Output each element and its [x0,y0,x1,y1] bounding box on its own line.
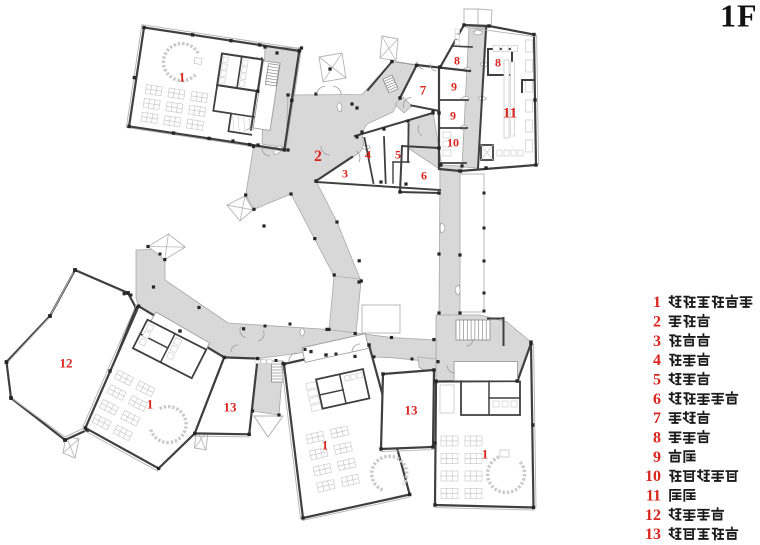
svg-text:10: 10 [645,468,661,485]
svg-text:7: 7 [653,410,661,427]
svg-text:5: 5 [653,372,661,389]
svg-text:9: 9 [653,449,661,466]
svg-text:2: 2 [653,314,661,331]
svg-text:11: 11 [646,488,661,505]
svg-text:3: 3 [653,333,661,350]
svg-text:13: 13 [645,526,661,543]
svg-text:8: 8 [653,430,661,447]
svg-text:12: 12 [645,507,661,524]
svg-text:1: 1 [653,294,661,311]
svg-text:6: 6 [653,391,661,408]
svg-text:4: 4 [653,352,661,369]
